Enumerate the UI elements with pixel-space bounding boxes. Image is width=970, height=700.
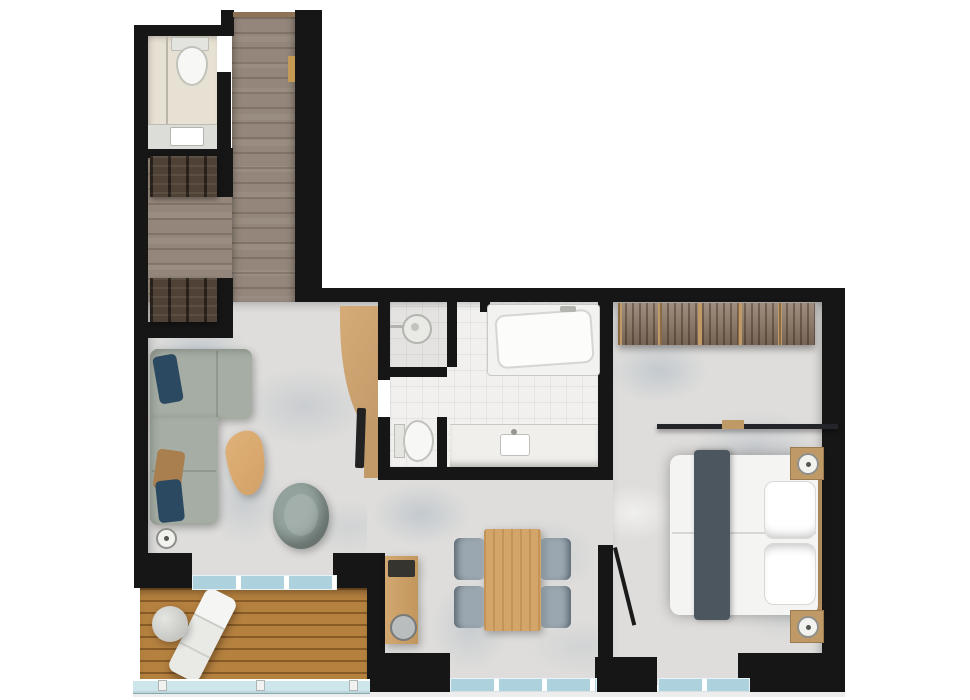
lounge-chair-seam: [179, 642, 210, 659]
partition-handle: [722, 420, 744, 429]
dining-chair: [540, 586, 571, 628]
bed-pillow: [764, 543, 816, 605]
dining-table: [484, 529, 541, 631]
balcony-sliding-door: [192, 575, 337, 590]
hallway-door-handle: [288, 56, 295, 82]
wall: [134, 25, 148, 322]
wardrobe-bottom: [150, 278, 217, 322]
wall: [217, 72, 231, 152]
railing-post: [256, 680, 265, 691]
railing-post: [158, 680, 167, 691]
dining-window: [450, 678, 597, 692]
bedroom-window: [658, 678, 750, 692]
wood-panel: [364, 420, 378, 478]
wall: [367, 653, 450, 692]
wardrobe-top: [150, 156, 217, 197]
sofa-seam: [216, 351, 218, 417]
wall: [217, 148, 233, 197]
bed-throw: [694, 450, 730, 620]
wall: [383, 367, 447, 377]
dining-chair: [454, 538, 485, 580]
wall: [738, 653, 845, 692]
wall: [295, 10, 322, 302]
shower-partition-wall: [447, 302, 457, 367]
wall: [598, 545, 613, 657]
floor-lamp: [156, 528, 177, 549]
hallway-floor: [232, 17, 295, 302]
wall: [595, 657, 657, 692]
plan-shadow: [133, 691, 845, 697]
wall: [134, 322, 148, 553]
entry-door: [233, 12, 295, 17]
wc-divider-line: [166, 36, 168, 124]
wall: [322, 288, 845, 302]
bathtub-basin: [494, 309, 595, 370]
sideboard-tray: [390, 614, 417, 641]
wall: [378, 467, 613, 480]
wall: [134, 553, 192, 588]
vanity-faucet: [511, 429, 517, 435]
dining-chair: [454, 586, 485, 628]
partition-screen: [657, 424, 838, 429]
armchair-seat: [284, 494, 318, 536]
wall: [134, 25, 234, 36]
bedroom-wardrobe: [618, 303, 815, 345]
shower-head-center: [411, 323, 419, 331]
sideboard-object: [388, 560, 415, 577]
bed-pillow: [764, 481, 816, 539]
nightstand-lamp: [797, 453, 819, 475]
dining-chair: [540, 538, 571, 580]
nightstand-lamp: [797, 616, 819, 638]
railing-post: [349, 680, 358, 691]
bathtub-faucet: [560, 306, 576, 312]
wall: [598, 302, 613, 477]
floor-plan: [0, 0, 970, 700]
sofa-pillow-navy: [155, 479, 185, 523]
vanity-sink: [500, 434, 530, 456]
round-side-table: [152, 606, 188, 642]
wall: [822, 302, 845, 692]
wall: [437, 417, 447, 467]
wc-sink: [170, 127, 204, 146]
